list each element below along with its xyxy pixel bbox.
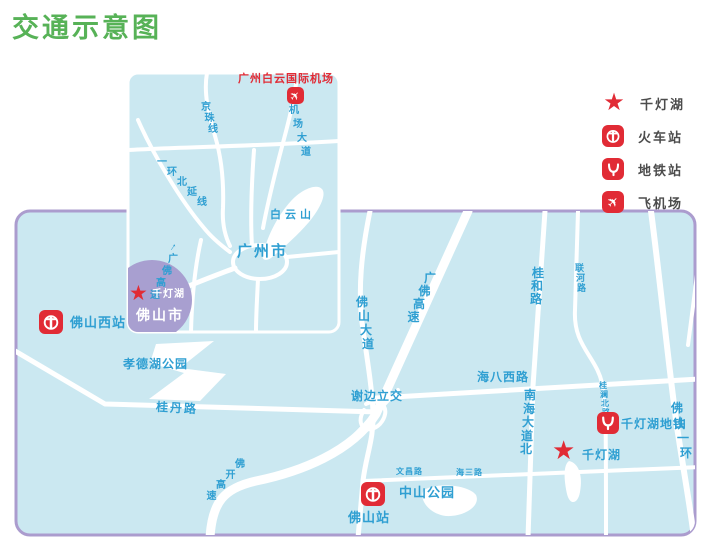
- guangzhou-city-label: 广州市: [237, 244, 288, 259]
- foshan-city-label: 佛山市: [136, 308, 184, 322]
- map-canvas: [0, 0, 711, 544]
- qiandeng-lake-label-main: 千灯湖: [582, 449, 621, 461]
- foshan-station-label: 佛山站: [348, 511, 390, 524]
- guidan-lu-label: 桂丹路: [156, 401, 199, 415]
- wenchang-lu-label: 文昌路: [396, 468, 423, 476]
- haisan-lu-label: 海三路: [456, 469, 483, 477]
- ring-spur-south: [256, 279, 258, 332]
- legend-label: 地铁站: [638, 160, 683, 179]
- xiaodehu-park-label: 孝德湖公园: [123, 358, 188, 370]
- railway-station-icon-foshan: [361, 482, 385, 506]
- qiandenghu-star-icon-main: ★: [552, 437, 575, 463]
- xiebian-interchange-label: 谢边立交: [351, 390, 403, 402]
- qiandeng-lake-label-inset: 千灯湖: [152, 290, 185, 300]
- baiyun-airport-label: 广州白云国际机场: [238, 74, 334, 85]
- qiandenghu-star-icon-inset: ★: [129, 283, 148, 304]
- traffic-map-page: 交通示意图: [0, 0, 711, 544]
- airport-icon: ✈: [287, 87, 304, 104]
- legend-item-metro: 地铁站: [602, 158, 685, 180]
- zhongshan-park-label: 中山公园: [399, 486, 455, 499]
- legend-label: 飞机场: [638, 193, 683, 212]
- haiba-west-road-label: 海八西路: [477, 371, 529, 383]
- foshan-west-station-label: 佛山西站: [70, 316, 126, 329]
- qiandeng-metro-label: 千灯湖地铁: [621, 418, 686, 430]
- legend: ★ 千灯湖 火车站 地铁站 ✈ 飞机场: [602, 92, 685, 213]
- airport-icon-legend: ✈: [602, 191, 624, 213]
- metro-station-icon-qiandeng: [597, 412, 619, 434]
- legend-item-qiandenghu: ★ 千灯湖: [602, 92, 685, 114]
- legend-label: 火车站: [638, 127, 683, 146]
- railway-station-icon-foshan-west: [39, 310, 63, 334]
- legend-label: 千灯湖: [640, 94, 685, 113]
- qiandenghu-star-icon-legend: ★: [602, 91, 626, 115]
- metro-station-icon-legend: [602, 158, 624, 180]
- baiyun-mountain-label: 白云山: [270, 210, 315, 221]
- legend-item-railway: 火车站: [602, 125, 685, 147]
- main-map-panel: [16, 211, 695, 535]
- railway-station-icon-legend: [602, 125, 624, 147]
- legend-item-airport: ✈ 飞机场: [602, 191, 685, 213]
